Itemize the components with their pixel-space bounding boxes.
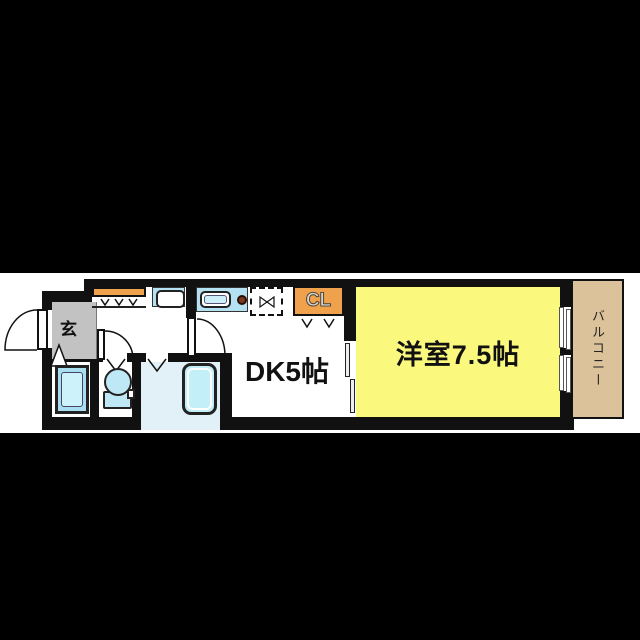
stove-burner-icon: [237, 295, 247, 305]
balcony: バルコニー: [571, 279, 624, 419]
closet-hanger-icon: [301, 318, 313, 329]
entrance-door-arc: [4, 309, 38, 351]
entrance-step-line: [92, 306, 146, 308]
wall-bottom: [42, 417, 574, 430]
dining-kitchen-label: DK5帖: [233, 350, 341, 390]
window-sash: [566, 357, 571, 393]
window-sash: [559, 355, 564, 391]
balcony-label: バルコニー: [588, 309, 607, 389]
refrigerator-space: [250, 287, 283, 316]
bath-door-fold-icon: [147, 358, 167, 373]
shoe-cabinet: [92, 287, 146, 297]
toilet-bowl: [104, 368, 132, 396]
washing-machine: [55, 365, 89, 414]
floorplan-area: 玄 洋室7.5帖 バルコニー DK5帖: [0, 273, 640, 433]
refrigerator-mark-icon: [259, 296, 275, 308]
window-sash: [559, 307, 564, 348]
wall-junction: [84, 279, 92, 302]
wash-basin: [156, 290, 185, 308]
entrance-label: 玄: [60, 315, 77, 340]
western-room-label: 洋室7.5帖: [396, 333, 521, 372]
kitchen-counter: [196, 287, 248, 312]
sliding-door-panel: [350, 379, 355, 413]
hall-door-arc: [104, 330, 134, 360]
wall-washer-toilet: [90, 353, 99, 430]
dk-door-arc: [196, 318, 226, 357]
western-room: 洋室7.5帖: [356, 287, 560, 417]
letterbox-top: [0, 0, 640, 273]
sliding-door-panel: [345, 343, 350, 377]
closet: CL: [293, 286, 344, 316]
wash-basin-unit: [152, 287, 185, 307]
floorplan-photo: 玄 洋室7.5帖 バルコニー DK5帖: [0, 0, 640, 640]
wall-hall-dk: [186, 279, 196, 318]
closet-label: CL: [306, 290, 331, 312]
entrance-door-leaf: [37, 309, 48, 350]
bathtub: [182, 363, 217, 415]
wall-dk-western: [344, 279, 356, 341]
letterbox-bottom: [0, 433, 640, 640]
dk-door-leaf: [187, 317, 196, 357]
closet-hanger-icon: [323, 318, 335, 329]
window-sash: [566, 309, 571, 350]
kitchen-sink: [200, 291, 231, 308]
wall-bath-dk: [220, 353, 232, 430]
